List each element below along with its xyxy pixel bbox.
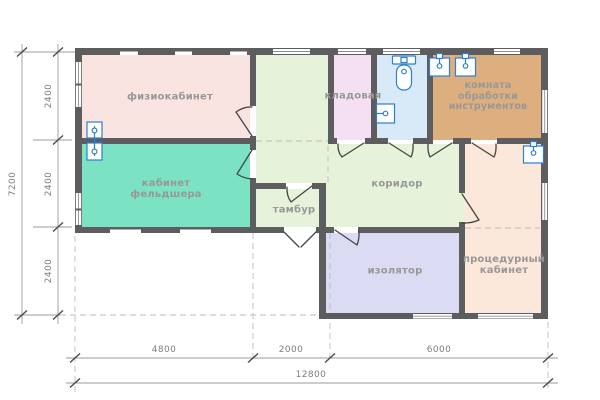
- door-isolator: [335, 230, 359, 245]
- door-entrance: [284, 232, 316, 247]
- dim-label-left-seg-3: 2400: [44, 259, 54, 284]
- door-tambur: [287, 186, 312, 202]
- doors: [236, 107, 496, 247]
- floor-plan: физиокабинет кабинет фельдшера кладовая …: [0, 0, 600, 400]
- room-label-instruments: комната обработки инструментов: [442, 81, 534, 113]
- door-bathroom: [389, 143, 413, 157]
- dim-label-bottom-seg-2: 2000: [279, 345, 304, 355]
- plan-linework: [0, 0, 600, 400]
- room-label-tambur: тамбур: [273, 204, 316, 215]
- door-procedure: [462, 194, 479, 223]
- dim-label-left-total: 7200: [8, 172, 18, 197]
- dim-label-left-seg-2: 2400: [44, 172, 54, 197]
- dim-label-bottom-seg-1: 4800: [152, 345, 177, 355]
- door-instruments-corridor: [428, 143, 452, 157]
- room-label-corridor: коридор: [371, 178, 422, 189]
- room-label-procedure: процедурный кабинет: [461, 254, 547, 276]
- sink-procedure-icon: [524, 142, 544, 164]
- door-physio: [236, 107, 252, 136]
- door-feldsher: [237, 150, 252, 179]
- sink-instruments-2-icon: [456, 54, 476, 77]
- room-label-isolator: изолятор: [368, 265, 423, 276]
- room-label-feldsher: кабинет фельдшера: [127, 178, 205, 200]
- dim-label-bottom-seg-3: 6000: [427, 345, 452, 355]
- room-label-physio: физиокабинет: [127, 91, 213, 102]
- toilet-icon: [393, 56, 416, 90]
- dim-label-left-seg-1: 2400: [44, 84, 54, 109]
- dim-label-bottom-total: 12800: [296, 370, 327, 380]
- door-instruments-procedure: [472, 143, 496, 157]
- sink-bathroom-icon: [377, 104, 395, 123]
- door-kladovaya: [338, 143, 364, 157]
- room-label-kladovaya: кладовая: [325, 90, 382, 101]
